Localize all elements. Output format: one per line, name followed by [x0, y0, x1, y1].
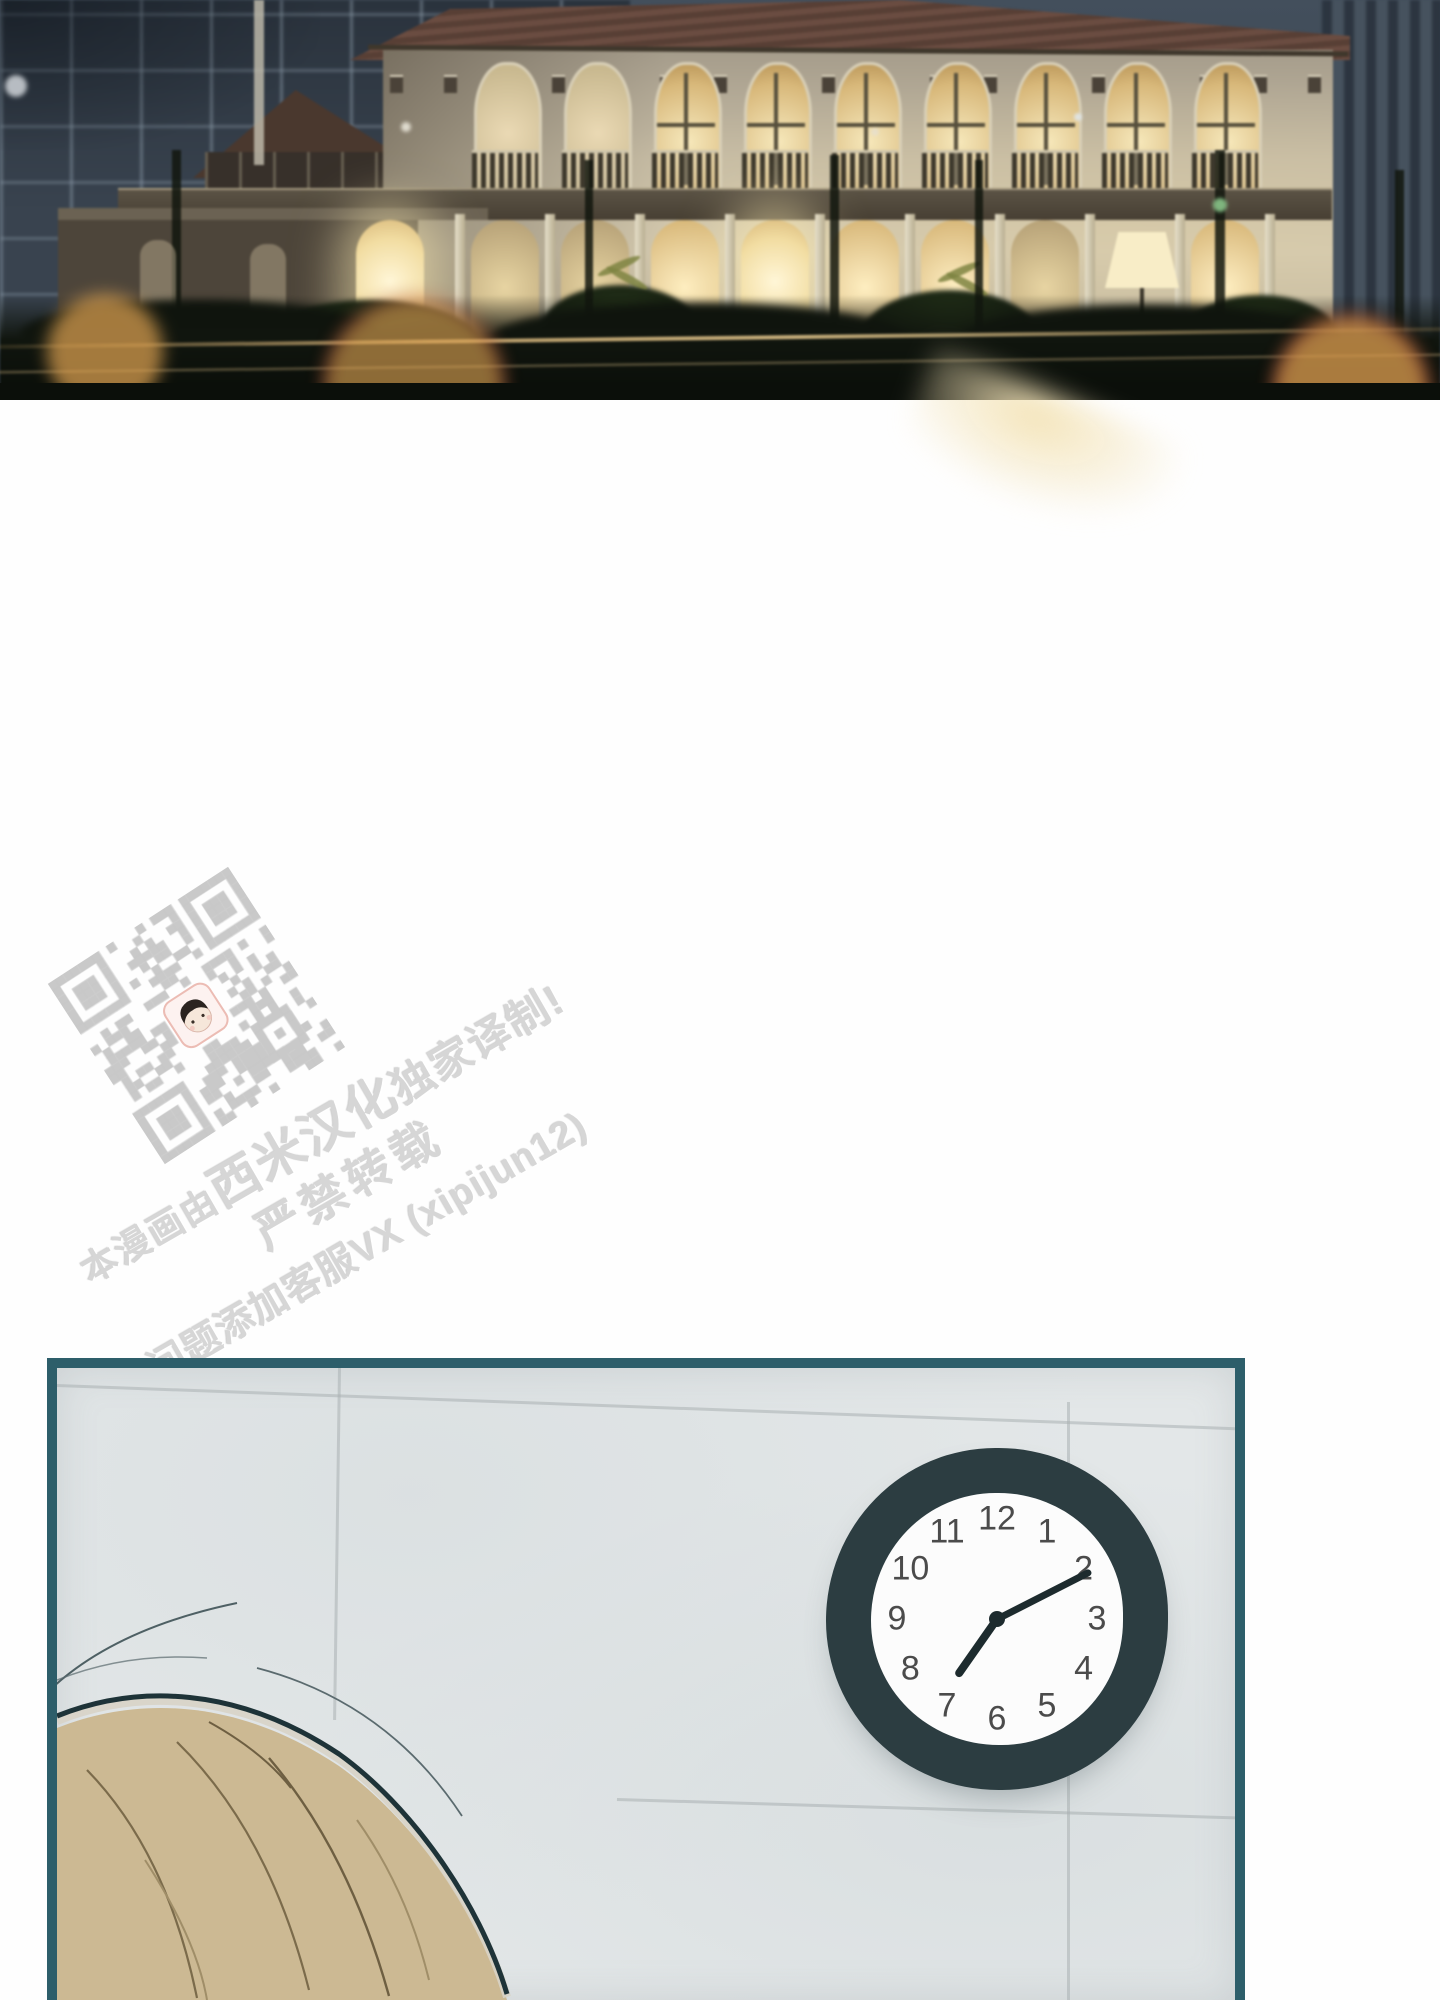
bokeh-light	[1074, 113, 1082, 121]
webtoon-page: { "page": {"type": "webtoon-episode-page…	[0, 0, 1440, 2000]
watermark-suffix: 独家译制!	[383, 975, 573, 1112]
character-hair	[57, 1560, 527, 2000]
clock-number: 7	[938, 1686, 957, 1725]
clock-number: 10	[891, 1550, 929, 1589]
clock-number: 2	[1074, 1550, 1093, 1589]
clock-hub	[989, 1611, 1005, 1627]
clock-number: 4	[1074, 1650, 1093, 1689]
bokeh-light	[5, 75, 27, 97]
bokeh-light	[1213, 198, 1227, 212]
clock-face: 121234567891011	[826, 1448, 1168, 1790]
clock-number: 12	[978, 1500, 1016, 1539]
clock-number: 1	[1038, 1513, 1057, 1552]
tile-grout-line	[57, 1384, 1236, 1430]
clock-number: 11	[929, 1513, 964, 1552]
night-building-panel	[0, 0, 1440, 400]
clock-minute-hand	[995, 1568, 1092, 1622]
clock-wall-panel: 121234567891011	[47, 1358, 1245, 2000]
panel-bottom-strip	[0, 383, 1440, 400]
bokeh-layer	[0, 0, 1440, 400]
night-scene-art	[0, 0, 1440, 400]
bokeh-light	[401, 122, 411, 132]
clock-number: 3	[1088, 1600, 1107, 1639]
clock-number: 5	[1038, 1686, 1057, 1725]
bokeh-light	[871, 128, 879, 136]
clock-number: 9	[888, 1600, 907, 1639]
clock-number: 8	[901, 1650, 920, 1689]
watermark-prefix: 本漫画由	[74, 1180, 226, 1292]
clock-number: 6	[988, 1700, 1007, 1739]
tile-grout-line	[617, 1798, 1237, 1819]
